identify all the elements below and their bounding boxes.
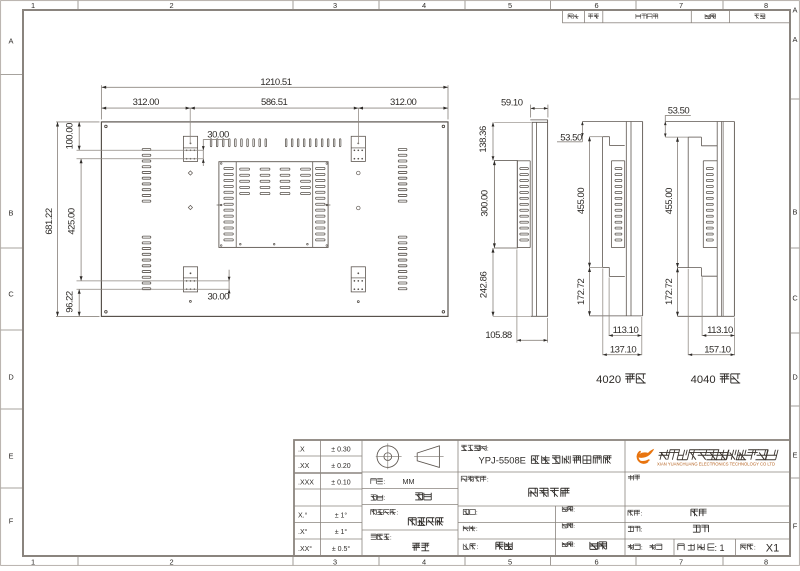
svg-text:312.00: 312.00 xyxy=(133,97,160,108)
svg-text::: : xyxy=(487,477,489,484)
svg-text:YPJ-5508E: YPJ-5508E xyxy=(479,454,526,465)
svg-text:D: D xyxy=(792,373,797,382)
svg-text:C: C xyxy=(8,290,14,299)
svg-text:XIAN YUANCHUANG ELECTRONICS TE: XIAN YUANCHUANG ELECTRONICS TECHNOLOGY C… xyxy=(657,461,775,466)
svg-text:2: 2 xyxy=(169,1,173,10)
svg-text:113.10: 113.10 xyxy=(707,325,733,336)
svg-text:30.00: 30.00 xyxy=(207,129,229,140)
svg-text:5: 5 xyxy=(508,1,512,10)
svg-text:: 1: : 1 xyxy=(714,543,724,553)
svg-text:53.50: 53.50 xyxy=(560,132,582,143)
svg-text:E: E xyxy=(9,452,14,461)
svg-text:8: 8 xyxy=(764,1,768,10)
svg-text:455.00: 455.00 xyxy=(664,188,675,215)
svg-text:X.°: X.° xyxy=(298,512,308,520)
svg-text:681.22: 681.22 xyxy=(44,208,55,235)
svg-text:5: 5 xyxy=(508,557,512,566)
svg-text:105.88: 105.88 xyxy=(485,330,512,341)
svg-text:138.36: 138.36 xyxy=(478,126,489,153)
svg-text::: : xyxy=(390,534,392,541)
svg-text:.XXX: .XXX xyxy=(298,480,314,487)
svg-text::: : xyxy=(383,495,385,502)
svg-text:.XX: .XX xyxy=(298,463,310,470)
svg-text:C: C xyxy=(792,294,798,303)
svg-text:4020: 4020 xyxy=(596,374,621,386)
svg-text:586.51: 586.51 xyxy=(261,97,288,108)
svg-text:B: B xyxy=(9,209,14,218)
svg-text::: : xyxy=(476,544,478,551)
svg-text:B: B xyxy=(793,208,798,217)
svg-text:425.00: 425.00 xyxy=(67,208,78,235)
svg-text::: : xyxy=(476,526,478,533)
svg-text:312.00: 312.00 xyxy=(390,97,417,108)
svg-text:.X°: .X° xyxy=(298,528,308,536)
svg-text:.X: .X xyxy=(298,447,305,454)
svg-text:.XX°: .XX° xyxy=(298,545,312,553)
svg-text:± 1°: ± 1° xyxy=(335,512,348,520)
svg-text::: : xyxy=(487,446,489,453)
svg-text::: : xyxy=(641,527,643,534)
svg-text:± 0.30: ± 0.30 xyxy=(331,447,351,454)
svg-text:± 0.10: ± 0.10 xyxy=(331,480,351,487)
svg-text:59.10: 59.10 xyxy=(501,98,523,109)
svg-text::: : xyxy=(476,510,478,517)
svg-text:F: F xyxy=(793,522,798,531)
svg-text:7: 7 xyxy=(679,557,683,566)
svg-text::: : xyxy=(641,545,643,552)
svg-text:± 1°: ± 1° xyxy=(335,528,348,536)
svg-text:3: 3 xyxy=(333,1,337,10)
svg-text:E: E xyxy=(793,451,798,460)
svg-text:157.10: 157.10 xyxy=(704,344,731,355)
svg-text:± 0.20: ± 0.20 xyxy=(331,463,351,470)
svg-text:1: 1 xyxy=(31,1,35,10)
svg-text:7: 7 xyxy=(679,1,683,10)
svg-text:30.00: 30.00 xyxy=(207,291,229,302)
svg-text:X1: X1 xyxy=(766,543,779,555)
svg-text:172.72: 172.72 xyxy=(664,278,675,305)
svg-text:D: D xyxy=(8,373,13,382)
svg-text:± 0.5°: ± 0.5° xyxy=(332,545,351,553)
svg-text:113.10: 113.10 xyxy=(613,325,639,336)
svg-text:8: 8 xyxy=(764,557,768,566)
svg-text:6: 6 xyxy=(594,1,598,10)
svg-text:455.00: 455.00 xyxy=(576,188,587,215)
svg-text:F: F xyxy=(9,517,14,526)
svg-text:172.72: 172.72 xyxy=(576,278,587,305)
svg-text::: : xyxy=(641,511,643,518)
svg-text::: : xyxy=(754,545,756,552)
svg-text:1210.51: 1210.51 xyxy=(260,77,291,88)
svg-text::: : xyxy=(396,510,398,517)
svg-text:A: A xyxy=(793,35,798,44)
svg-text:100.00: 100.00 xyxy=(64,123,75,150)
svg-text:300.00: 300.00 xyxy=(479,190,490,217)
svg-text:A: A xyxy=(9,37,14,46)
svg-text:1: 1 xyxy=(31,557,35,566)
svg-text:3: 3 xyxy=(333,557,337,566)
svg-text:96.22: 96.22 xyxy=(64,291,75,313)
svg-text:137.10: 137.10 xyxy=(610,344,637,355)
svg-text:4: 4 xyxy=(422,1,426,10)
svg-text:4040: 4040 xyxy=(691,374,716,386)
svg-text:MM: MM xyxy=(403,477,415,486)
svg-text:4: 4 xyxy=(422,557,426,566)
svg-text:A: A xyxy=(793,6,798,15)
svg-text:2: 2 xyxy=(169,557,173,566)
svg-text:53.50: 53.50 xyxy=(668,105,690,116)
svg-text:242.86: 242.86 xyxy=(479,272,490,299)
svg-text:6: 6 xyxy=(594,557,598,566)
svg-text::: : xyxy=(383,479,385,486)
